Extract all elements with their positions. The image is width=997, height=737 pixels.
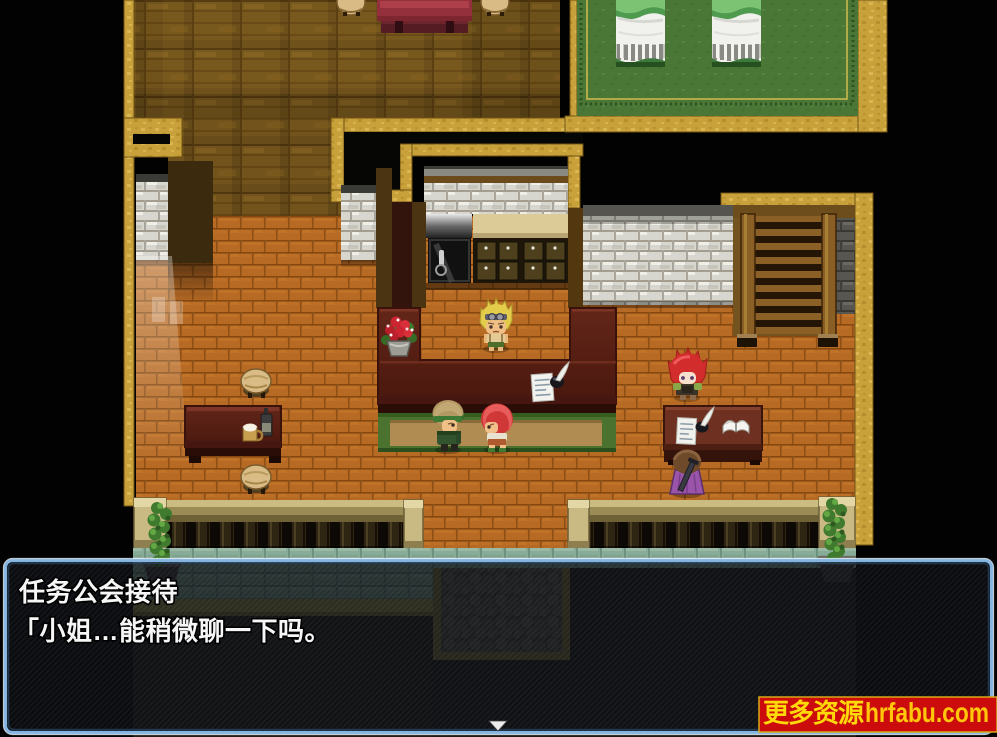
svg-text:任务公会接待: 任务公会接待 bbox=[18, 577, 178, 607]
svg-text:「小姐…能稍微聊一下吗。: 「小姐…能稍微聊一下吗。 bbox=[13, 616, 331, 646]
svg-text:更多资源: 更多资源 bbox=[763, 698, 864, 728]
svg-text:hrfabu.com: hrfabu.com bbox=[865, 697, 989, 728]
